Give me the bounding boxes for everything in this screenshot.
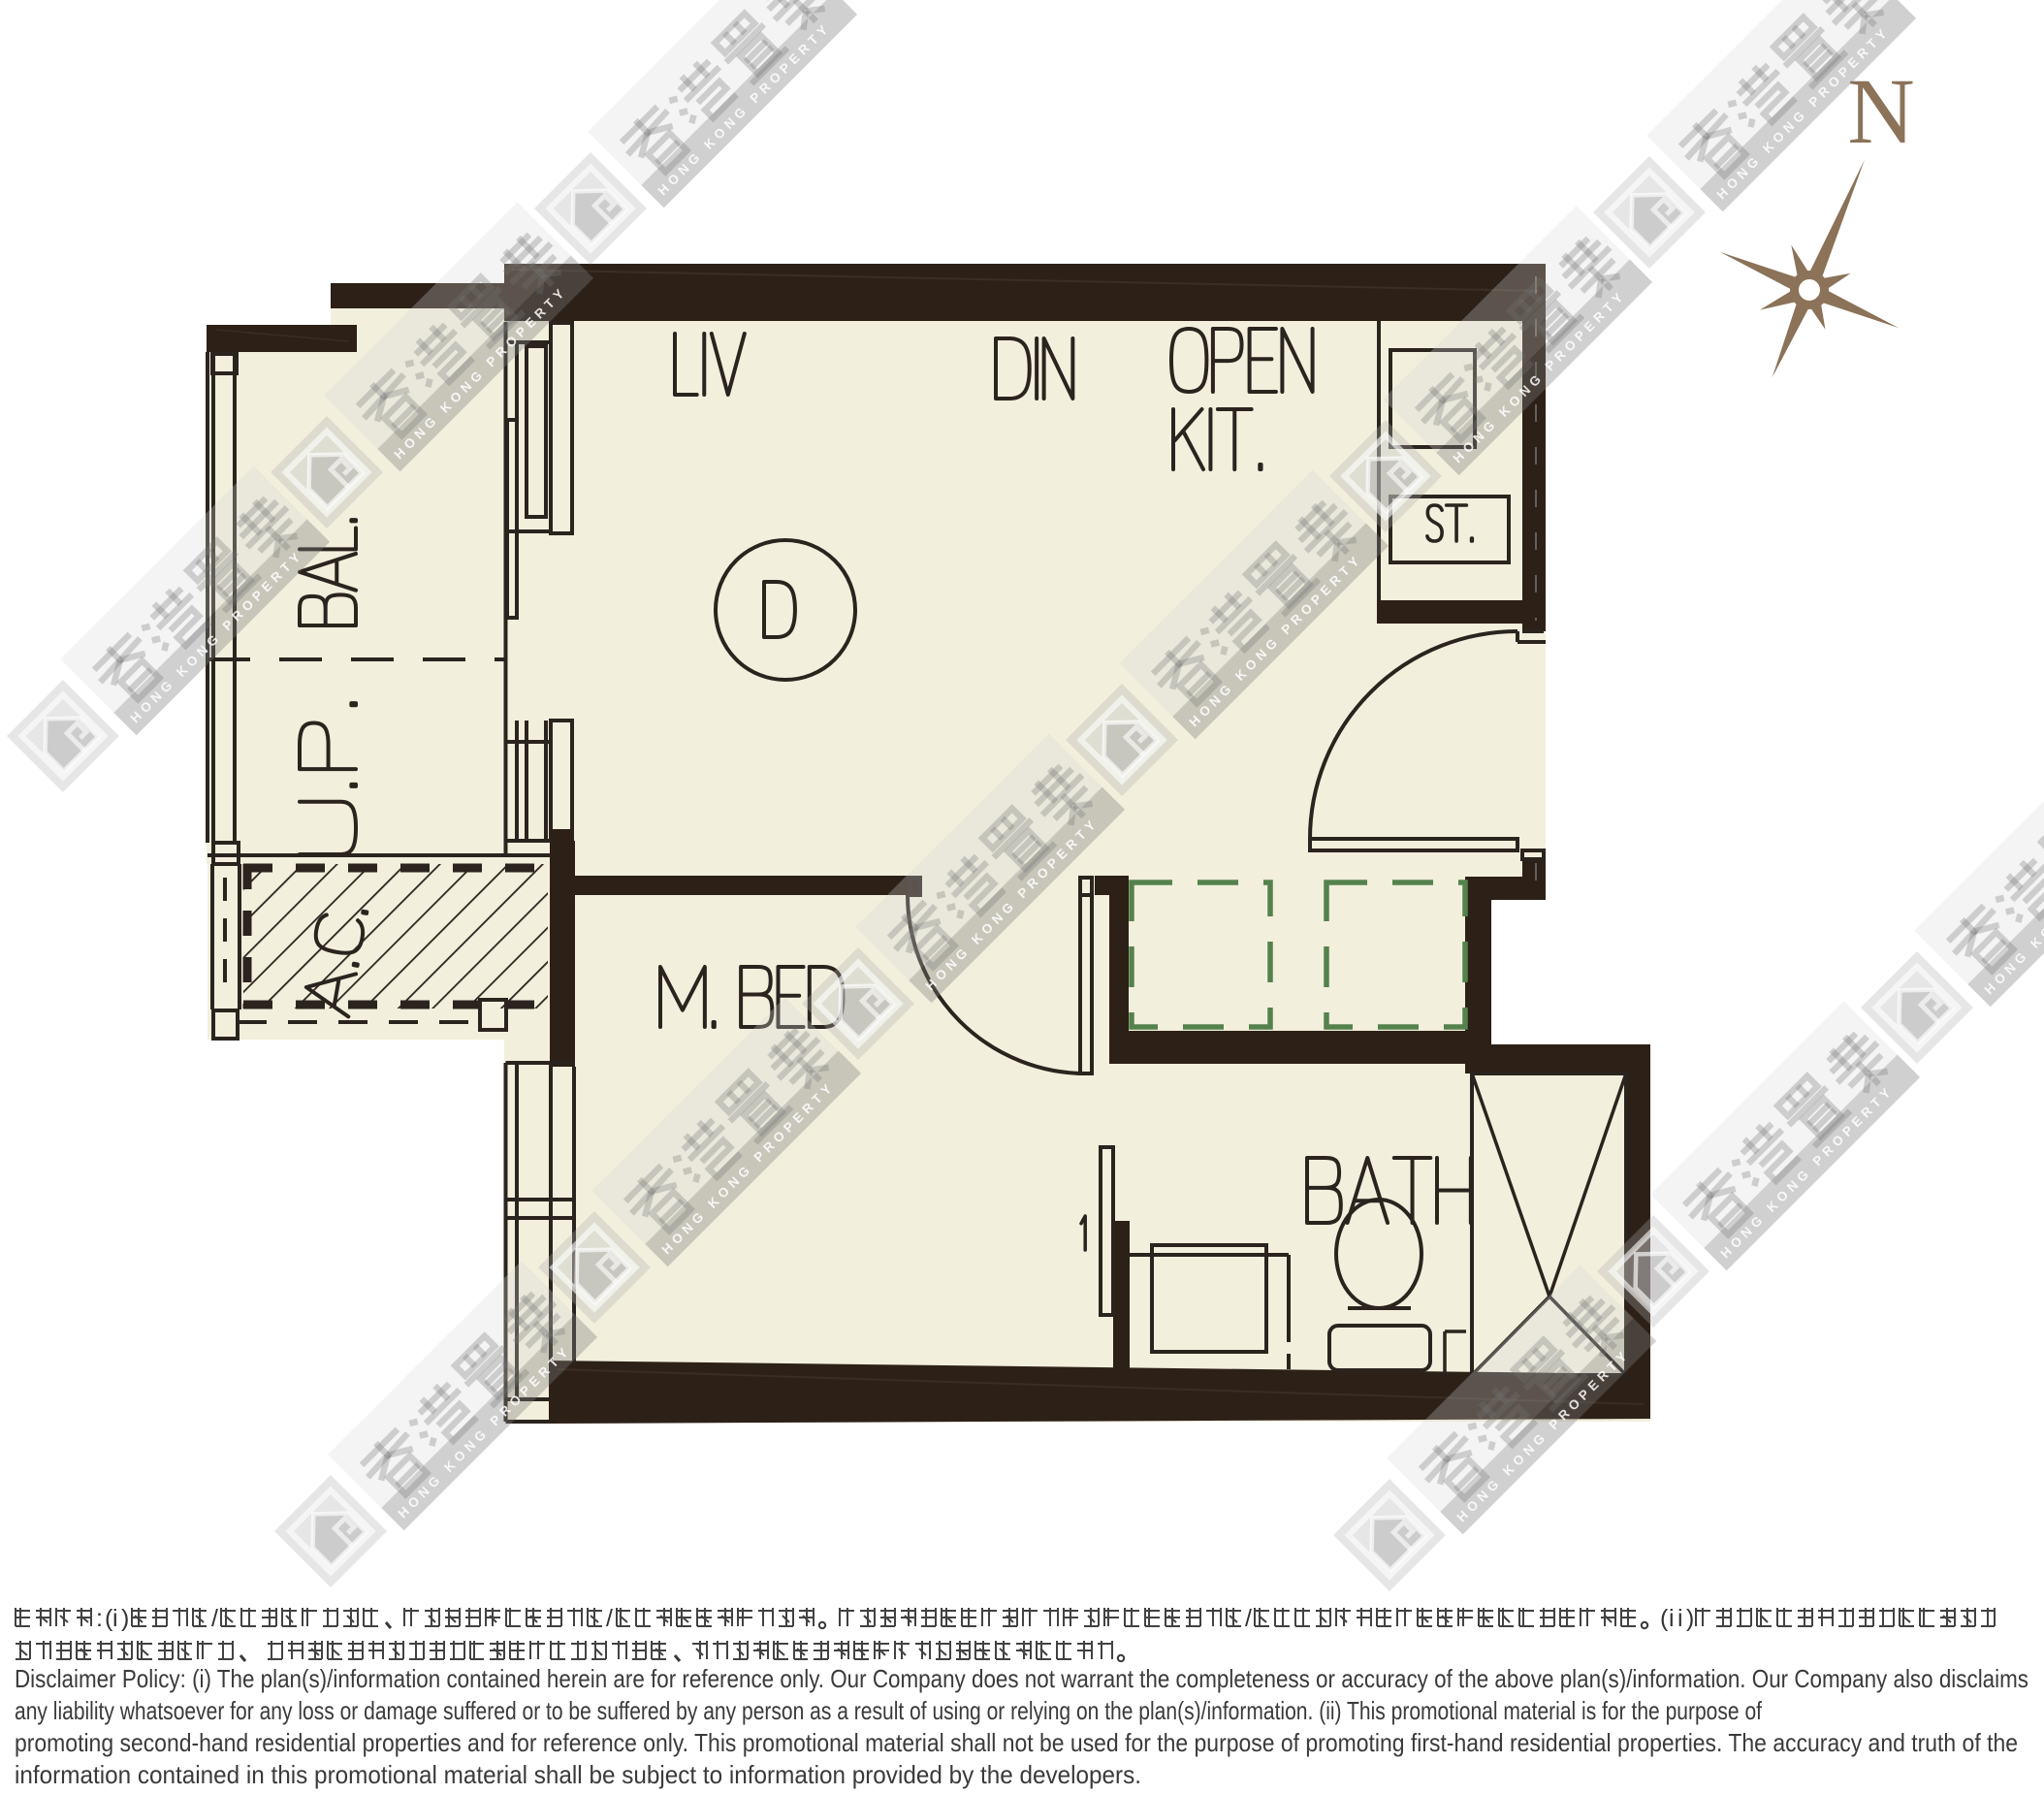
svg-text::: : [96,1605,103,1632]
svg-text:): ) [1686,1605,1694,1632]
svg-text:i: i [1669,1605,1675,1632]
svg-text:/: / [1245,1605,1252,1632]
svg-text:any liability whatsoever for a: any liability whatsoever for any loss or… [15,1696,1763,1725]
svg-text:Disclaimer Policy: (i) The pla: Disclaimer Policy: (i) The plan(s)/infor… [15,1664,2028,1693]
svg-text:/: / [211,1605,218,1632]
svg-text:i: i [112,1605,118,1632]
svg-text:/: / [606,1605,613,1632]
svg-text:(: ( [1660,1605,1669,1632]
svg-text:information contained in this: information contained in this promotiona… [15,1760,1141,1789]
svg-text:promoting second-hand resident: promoting second-hand residential proper… [15,1728,2018,1757]
svg-text:): ) [121,1605,129,1632]
svg-text:i: i [1677,1605,1683,1632]
